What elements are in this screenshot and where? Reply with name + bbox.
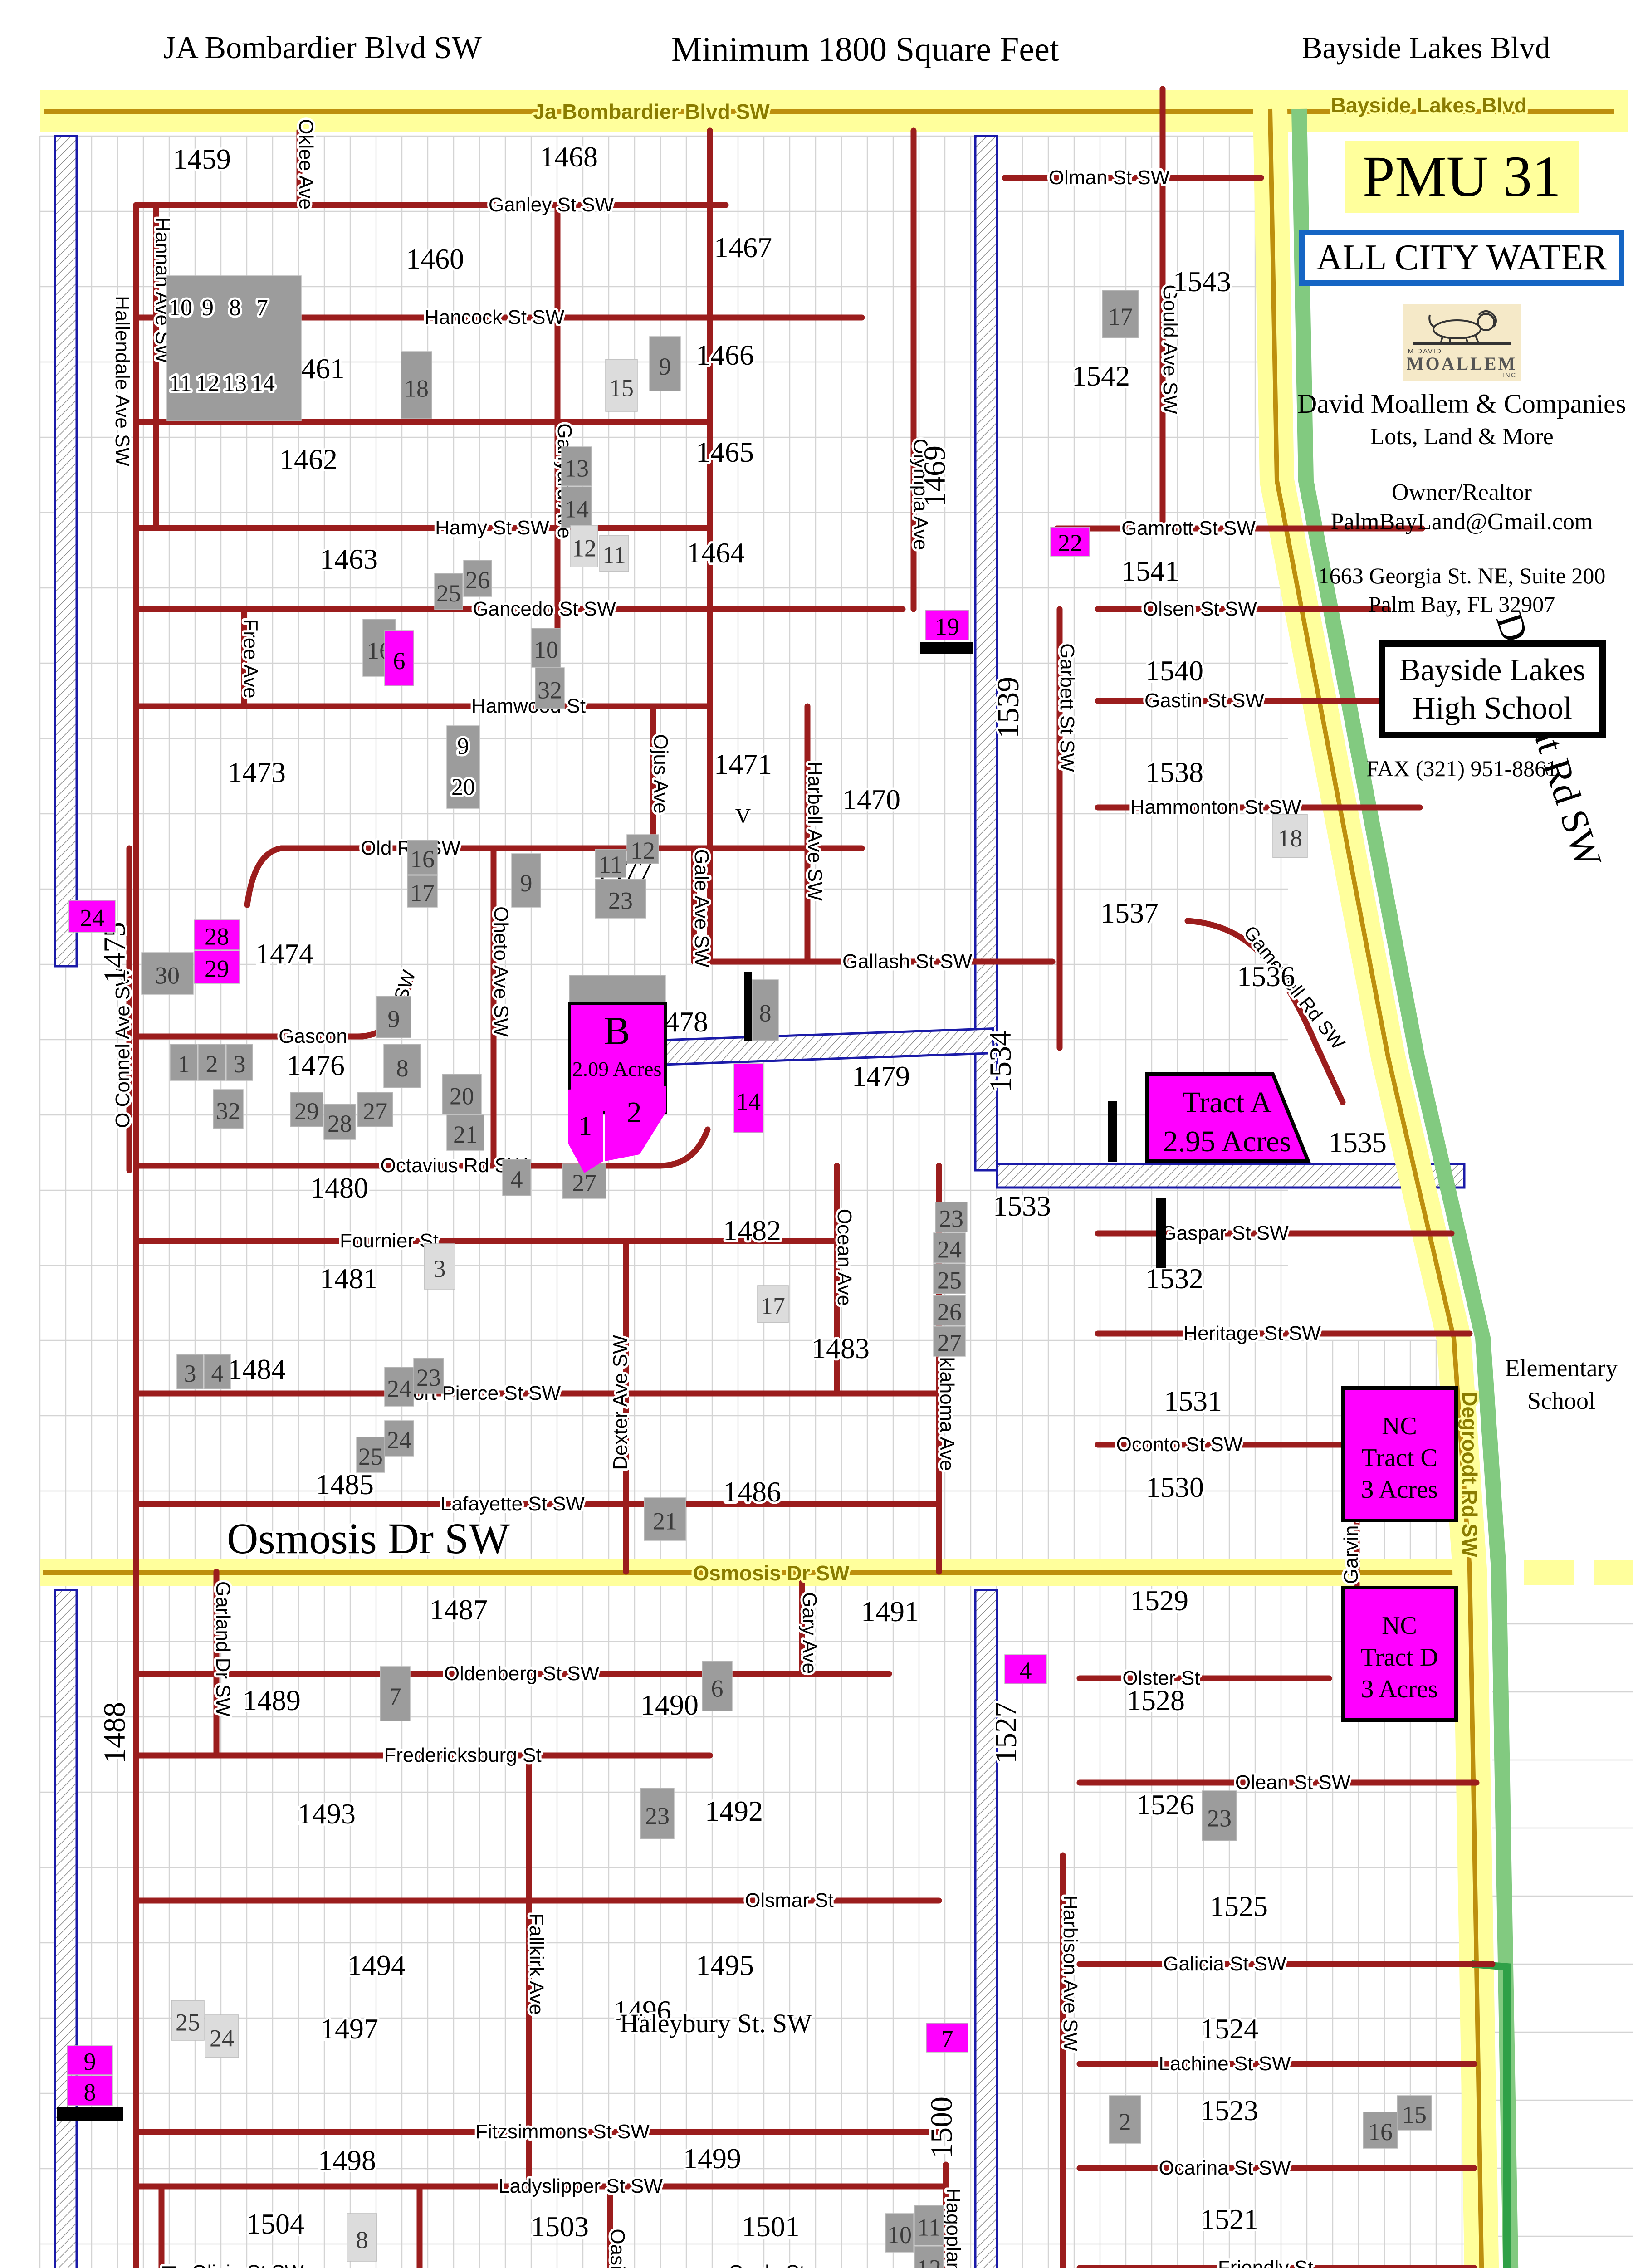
lot-number: 28 [328,1110,352,1137]
block-number: 1497 [320,2013,378,2045]
lot-number: 23 [1207,1805,1232,1832]
email: PalmBayLand@Gmail.com [1291,508,1633,535]
logo-inc: INC [1502,371,1517,379]
map-label: 11 [169,371,192,396]
avenue-label: Hallendale Ave SW [111,296,133,466]
lot-number: 8 [396,1055,409,1082]
lot-number: 25 [358,1443,383,1470]
block-number: 1480 [310,1172,368,1204]
street-label: Ganley St SW [489,194,614,216]
lot-number: 18 [404,375,429,402]
lot-number: 2 [206,1051,218,1078]
lot-number: 2 [1119,2108,1131,2136]
lot-number: 13 [564,455,589,482]
street-label: Olean St SW [1235,1771,1351,1794]
lot-number: 14 [736,1088,761,1115]
block-number: 1474 [255,938,313,970]
avenue-label: Hagoplan Ave SW [942,2188,964,2268]
lot-number: 21 [653,1508,677,1535]
street-label: Gallash St SW [842,950,973,973]
lot-number: 24 [210,2025,234,2052]
street-label: Gancedo St SW [473,598,616,620]
lot-number: 7 [389,1683,401,1710]
lot-number: 25 [176,2009,200,2036]
map-label: 14 [251,371,275,396]
lot-number: 23 [416,1364,441,1391]
street-label: Olivia St SW [192,2261,304,2268]
canal-strip [975,1590,997,2268]
lot-number: 25 [937,1266,962,1294]
block-number: 1483 [812,1332,870,1364]
lot-number: 29 [205,955,229,982]
avenue-label: Garland Dr SW [212,1581,234,1717]
avenue-label: Oklee Ave [295,119,317,210]
map-label: V [735,804,751,828]
lot-number: 4 [511,1166,523,1193]
block-number: 1485 [316,1468,374,1501]
black-bar [1108,1101,1117,1162]
lot-number: 24 [387,1375,411,1402]
tract-d-label: 3 Acres [1361,1675,1438,1703]
tract-b-label: B [604,1009,631,1053]
block-number: 1537 [1100,897,1159,929]
lot-number: 27 [937,1329,962,1356]
tract-c-label: 3 Acres [1361,1476,1438,1504]
all-city-water-label: ALL CITY WATER [1299,230,1624,286]
black-bar [1156,1198,1166,1268]
street-label: Gascon [279,1025,347,1047]
street-label: Fournier St [340,1230,439,1252]
avenue-label: Ojus Ave [650,734,672,813]
block-number: 1462 [279,443,337,475]
road-name-label: Bayside Lakes Blvd [1331,93,1527,117]
block-number: 1536 [1237,960,1295,992]
lot-number: 12 [917,2254,941,2268]
street-label: Ocala St [728,2261,805,2268]
map-label: 10 [169,295,192,321]
block-number: 1528 [1127,1684,1185,1716]
lot-number: 11 [602,542,626,569]
block-number: 1543 [1173,265,1231,298]
street-label: Olsen St SW [1143,598,1257,620]
avenue-label: Gould Ave SW [1159,284,1181,414]
osmosis-dash [1524,1560,1574,1585]
map-label: School [1527,1387,1595,1414]
canal-number: 1534 [983,1031,1017,1092]
lot-number: 10 [534,636,558,663]
avenue-label: Dexter Ave SW [609,1335,631,1470]
block-number: 1490 [640,1689,699,1721]
street-label: Gaspar St SW [1161,1222,1289,1244]
block-number: 1540 [1145,655,1203,687]
company-name: David Moallem & Companies [1291,388,1633,420]
lot-number: 32 [538,677,562,704]
lot-number: 8 [84,2078,96,2106]
address-line1: 1663 Georgia St. NE, Suite 200 [1318,563,1606,588]
avenue-label: Garbett St SW [1056,643,1078,772]
lion-icon [1403,304,1521,349]
block-number: 1542 [1072,360,1130,392]
block-number: 1523 [1200,2094,1258,2126]
block-number: 1465 [696,436,754,468]
block-number: 1504 [246,2208,304,2240]
lot-number: 27 [363,1098,387,1125]
block-number: 1524 [1200,2013,1258,2045]
lot-number: 14 [564,496,589,523]
block-number: 1499 [683,2142,741,2175]
lot-number: 4 [1020,1657,1032,1684]
street-label: Ocarina St SW [1159,2157,1291,2179]
canal-strip [55,136,77,966]
block-number: 1481 [320,1262,378,1295]
lot-number: 25 [436,580,461,607]
lot-number: 10 [887,2221,912,2248]
map-label: 13 [223,371,247,396]
lot-number: 9 [520,870,533,897]
canal-strip [55,1590,77,2268]
lot-number: 17 [410,880,435,907]
street-label: Lafayette St SW [440,1493,585,1515]
fax: FAX (321) 951-8861 [1291,755,1633,782]
tract-d-label: NC [1382,1612,1417,1640]
street-label: Olsmar St [745,1889,834,1911]
black-bar [920,642,973,654]
lot-number: 23 [645,1803,670,1830]
block-number: 1530 [1146,1471,1204,1503]
block-number: 1484 [228,1353,286,1385]
lot-number: 19 [935,613,959,640]
header-center: Minimum 1800 Square Feet [671,30,1059,69]
lot-number: 12 [631,837,655,864]
header-left: JA Bombardier Blvd SW [163,30,482,66]
avenue-label: Harbison Ave SW [1059,1895,1081,2051]
avenue-label: Oheto Ave SW [490,906,512,1037]
lot-number: 17 [761,1292,785,1320]
block-number: 1464 [687,537,745,569]
avenue-label: Gary Ave [798,1592,821,1674]
lot-number: 20 [450,1082,474,1110]
map-label: 12 [196,371,220,396]
lot-number: 3 [234,1051,246,1078]
tract-b-label: 2.09 Acres [572,1057,662,1080]
street-label: Gamrott St SW [1121,517,1256,539]
lot-number: 6 [393,647,406,675]
lot-number: 24 [387,1427,411,1454]
moallem-logo: M DAVID MOALLEM INC [1403,304,1521,381]
block-number: 1492 [705,1795,763,1827]
block-number: 1495 [696,1949,754,1981]
tract-a-label: 2.95 Acres [1163,1125,1291,1158]
lot-number: 12 [572,535,596,562]
block-number: 1498 [318,2144,376,2176]
street-label: Fitzsimmons St SW [475,2121,650,2143]
high-school-line2: High School [1413,691,1572,726]
lot-number: 15 [609,374,634,401]
canal-number: 1488 [97,1702,132,1764]
lot-number: 7 [941,2025,953,2053]
road-name-label: Osmosis Dr SW [693,1561,850,1585]
black-bar [744,972,752,1041]
block-number: 1538 [1145,756,1203,788]
block-number: 1535 [1329,1126,1387,1158]
block-number: 1466 [696,339,754,371]
lot [569,975,665,1003]
lot-number: 24 [937,1236,962,1263]
lot-number: 27 [572,1169,596,1197]
map-label: 7 [256,295,268,321]
map-label: Haleybury St. SW [620,2009,812,2038]
tract-b-lot1-label: 1 [578,1111,592,1141]
avenue-label: Harbell Ave SW [804,761,826,901]
high-school-line1: Bayside Lakes [1399,653,1585,688]
block-number: 1487 [430,1593,488,1626]
map-label: 9 [202,295,214,321]
lot-number: 9 [388,1006,400,1033]
lot-number: 32 [216,1097,240,1124]
address-line2: Palm Bay, FL 32907 [1369,591,1555,617]
lot-number: 29 [294,1098,319,1125]
block-number: 1525 [1210,1890,1268,1922]
lot-number: 24 [80,904,104,932]
address: 1663 Georgia St. NE, Suite 200 Palm Bay,… [1291,562,1633,618]
block-number: 1486 [723,1476,781,1508]
lot-number: 22 [1058,529,1082,557]
pmu-31-label: PMU 31 [1345,141,1579,213]
lot-number: 11 [917,2214,941,2241]
lot-number: 17 [1108,303,1133,330]
lot-number: 6 [711,1675,724,1702]
block-number: 1468 [540,141,598,173]
street-curve [247,848,281,905]
block-number: 1526 [1136,1789,1194,1821]
lot-number: 15 [1402,2101,1427,2128]
lot-number: 30 [155,962,180,989]
map-label: Elementary [1505,1354,1618,1382]
block-number: 1459 [173,143,231,175]
block-number: 1471 [714,748,772,780]
street-label: Fredericksburg St [384,1744,541,1766]
block-number: 1467 [714,231,772,264]
street-label: Galicia St SW [1163,1953,1286,1975]
lot-number: 16 [1368,2118,1393,2146]
block-number: 1501 [742,2210,800,2243]
block-number: 1503 [531,2210,589,2243]
lot-number: 23 [939,1205,963,1232]
block-number: 1473 [228,756,286,788]
lot-number: 9 [84,2048,96,2075]
logo-moallem: MOALLEM [1403,353,1521,374]
tract-c-label: NC [1382,1412,1417,1440]
block-number: 1529 [1130,1584,1188,1617]
block-number: 1482 [723,1214,781,1246]
block-number: 1463 [320,543,378,575]
street-label: Ladyslipper St SW [499,2175,663,2197]
lot-number: 1 [178,1051,190,1078]
map-label: 9 [457,733,469,759]
block-number: 1479 [852,1060,910,1092]
tract-b-lot2-label: 2 [627,1096,642,1129]
block-number: 1541 [1121,555,1179,587]
block-number: 1532 [1145,1262,1203,1295]
lot-number: 28 [205,923,229,950]
lot-number: 26 [465,567,490,594]
canal-number: 1539 [991,677,1025,738]
block-number: 1476 [287,1049,345,1081]
lot-number: 11 [599,851,622,878]
block-number: 1494 [347,1949,406,1981]
block-number: 1491 [861,1595,919,1628]
street-curve [660,1129,708,1166]
owner-realtor: Owner/Realtor [1291,479,1633,506]
avenue-label: Oklahoma Ave [936,1341,958,1471]
avenue-label: Gale Ave SW [690,849,713,968]
road-name-label: Ja Bombardier Blvd SW [533,100,770,123]
lot-number: 9 [659,353,671,380]
street-label: Lachine St SW [1159,2053,1291,2075]
lot-number: 3 [434,1255,446,1282]
black-bar [57,2107,123,2121]
tract-d-label: Tract D [1361,1643,1438,1672]
tract-a-label: Tract A [1182,1086,1272,1119]
block-number: 1521 [1200,2203,1258,2235]
lot-number: 23 [608,887,633,914]
street-label: Oconto St SW [1116,1433,1243,1456]
lot-number: 3 [184,1360,196,1387]
street-label: Olman St SW [1049,166,1170,189]
canal-number: 1500 [924,2097,958,2158]
avenue-label: Fleming Ave SW [158,2265,180,2268]
street-label: Heritage St SW [1183,1322,1321,1344]
avenue-label: Free Ave [240,619,262,698]
road-name-label: Degroodt Rd SW [1458,1391,1481,1557]
lot-number: 8 [356,2226,368,2253]
map-label: 20 [451,774,475,800]
block-number: 1493 [298,1798,356,1830]
street-label: Hamwood St [471,695,586,717]
avenue-label: Oasis Ave [606,2229,629,2268]
avenue-label: Fallkirk Ave [525,1913,548,2015]
street-label: Oldenberg St SW [444,1662,600,1685]
lot-number: 26 [937,1298,962,1325]
lot-number: 8 [759,1000,772,1027]
canal-number: 1469 [917,445,952,507]
canal-strip [975,136,997,1170]
block-number: 1531 [1164,1385,1222,1417]
block-number: 1489 [243,1684,301,1716]
map-label: Osmosis Dr SW [227,1514,510,1563]
header-right: Bayside Lakes Blvd [1302,30,1550,66]
osmosis-dash [1594,1560,1633,1585]
block-number: 1533 [993,1190,1051,1222]
block-number: 1460 [406,243,464,275]
map-label: 8 [229,295,241,321]
avenue-label: Ocean Ave [833,1209,856,1306]
street-label: Hancock St SW [425,306,565,328]
avenue-label: O Connel Ave SW [112,968,134,1128]
plat-map-page: Stillwater Lakes DrGanley St SWOlman St … [0,0,1633,2268]
street-label: Hamy St SW [435,517,549,539]
street-label: Gastin St SW [1144,689,1265,712]
street-label: Friendly St [1218,2257,1313,2268]
lot-number: 18 [1278,825,1302,852]
canal-number: 1527 [988,1702,1023,1764]
tract-c-label: Tract C [1361,1444,1437,1472]
lot-number: 21 [453,1121,478,1148]
company-tagline: Lots, Land & More [1291,423,1633,450]
high-school-box: Bayside Lakes High School [1379,640,1606,738]
lot-number: 4 [211,1360,224,1387]
drainage-strip [997,1164,1464,1188]
lot-number: 16 [410,846,435,873]
block-number: 1470 [842,783,900,816]
